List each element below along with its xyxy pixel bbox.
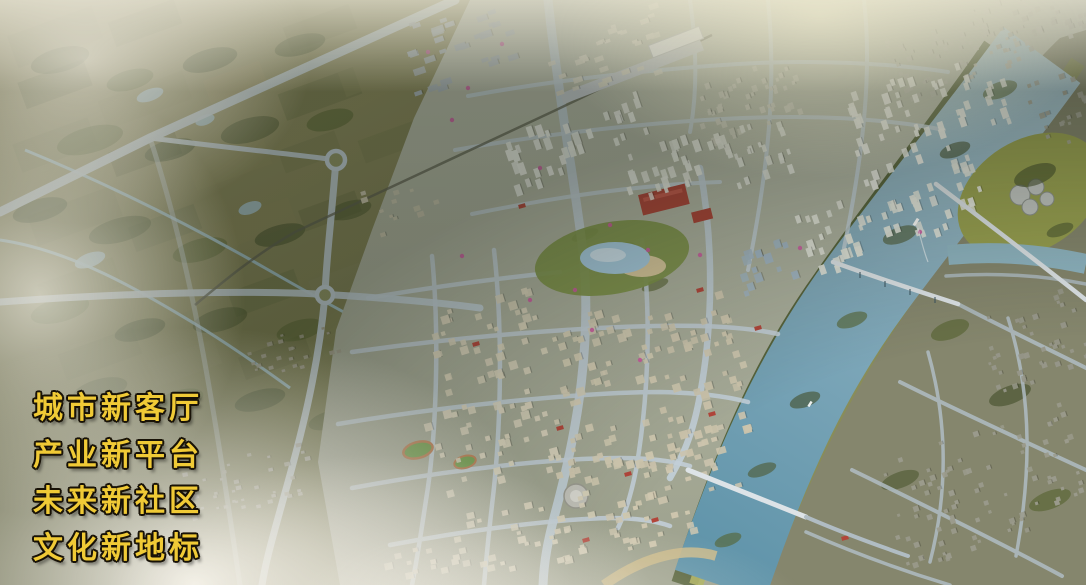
slogan-line-1: 城市新客厅 <box>33 382 203 429</box>
slogan-line-2: 产业新平台 <box>33 429 203 476</box>
slogan-line-4: 文化新地标 <box>33 522 203 569</box>
slogan-line-3: 未来新社区 <box>33 475 203 522</box>
slogan-overlay: 城市新客厅 产业新平台 未来新社区 文化新地标 <box>33 382 203 568</box>
poster-root: 城市新客厅 产业新平台 未来新社区 文化新地标 <box>0 0 1086 585</box>
